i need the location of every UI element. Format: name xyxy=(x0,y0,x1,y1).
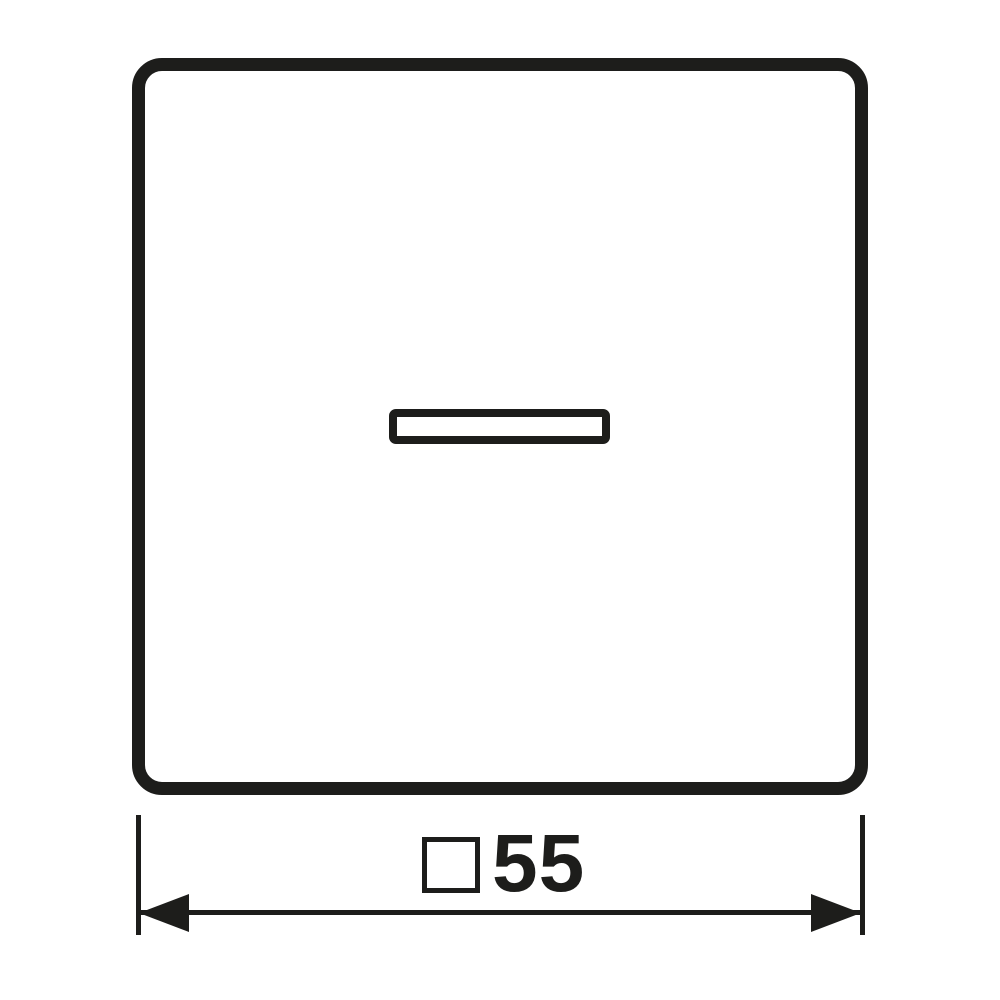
indicator-lens-window xyxy=(389,409,610,444)
arrowhead-right-icon xyxy=(811,894,861,932)
square-dimension-icon xyxy=(422,837,480,893)
technical-drawing-canvas: 55 xyxy=(0,0,1000,1000)
dimension-value-label: 55 xyxy=(492,823,585,905)
arrowhead-left-icon xyxy=(139,894,189,932)
dimension-line xyxy=(140,910,860,915)
